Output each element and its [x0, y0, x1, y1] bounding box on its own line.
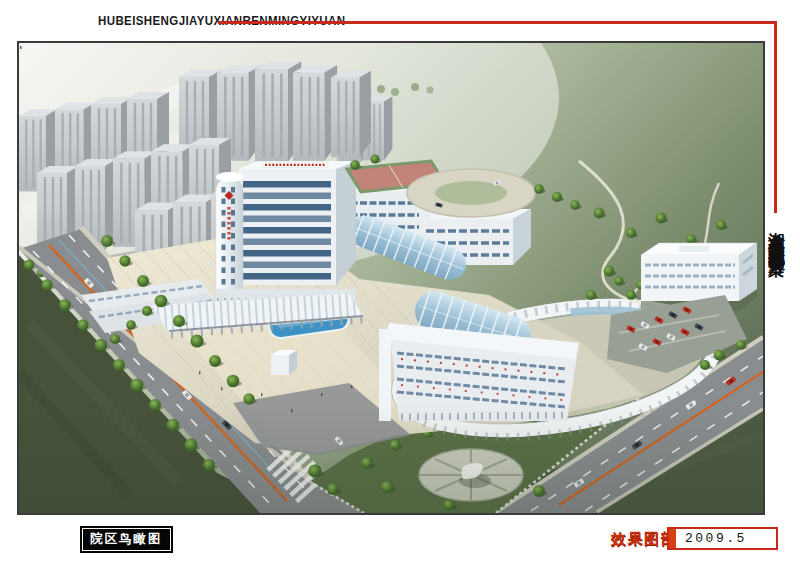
- red-divider-vertical: [774, 21, 777, 213]
- date-box: 2009.5: [667, 527, 778, 550]
- vignette: [19, 403, 763, 513]
- aerial-rendering-frame: [17, 41, 765, 515]
- presentation-board: HUBEISHENGJIAYUXIANRENMINGYIYUAN: [0, 0, 800, 565]
- date-text: 2009.5: [685, 531, 747, 546]
- side-vertical-title: 湖北省嘉鱼县人民医院规划设计方案: [763, 219, 791, 519]
- campus-aerial-scene: [19, 43, 763, 513]
- gate-house: [271, 350, 297, 375]
- red-divider-horizontal: [218, 21, 777, 24]
- view-caption: 院区鸟瞰图: [80, 526, 173, 553]
- main-inpatient-tower: [216, 161, 356, 304]
- view-caption-text: 院区鸟瞰图: [90, 532, 163, 546]
- date-accent-bar: [669, 529, 676, 548]
- circular-driveway: [407, 169, 535, 217]
